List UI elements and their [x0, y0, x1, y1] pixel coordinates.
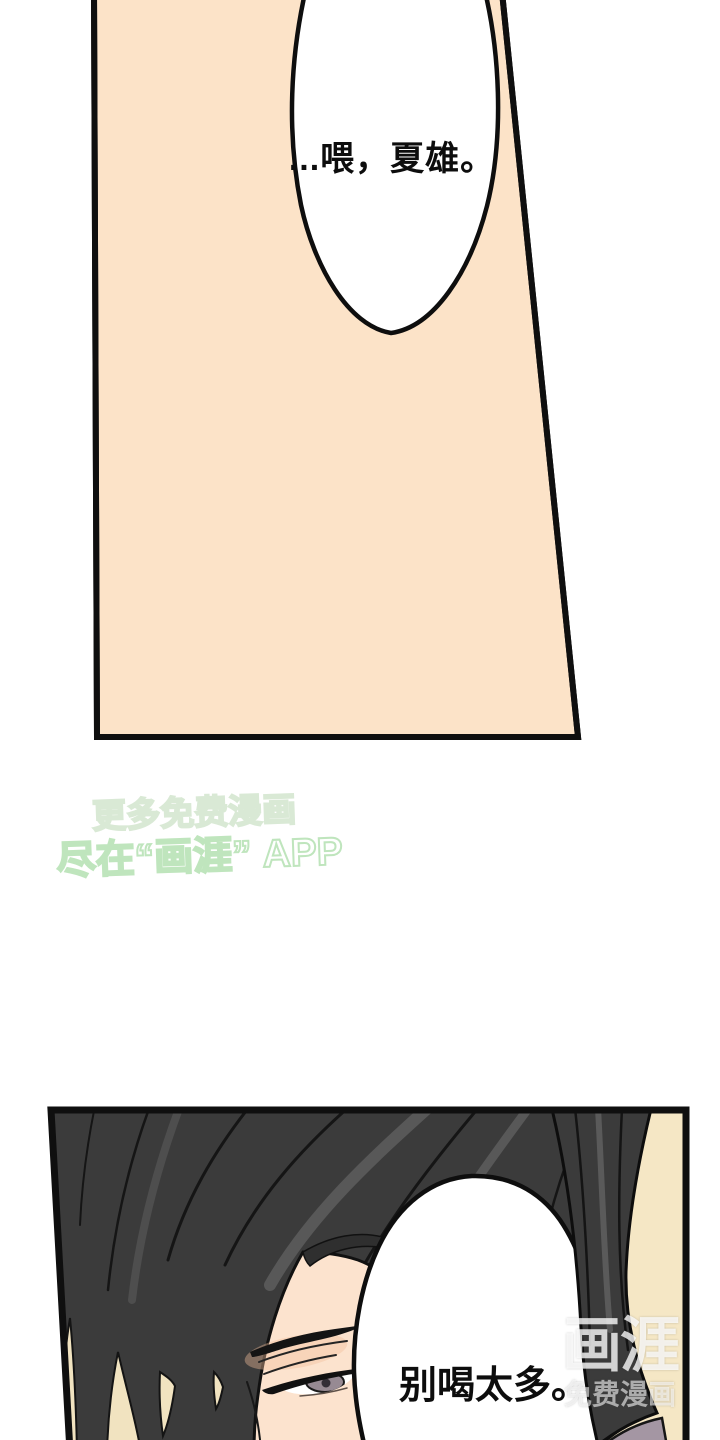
brand-watermark-tagline: 免费漫画: [552, 1380, 688, 1410]
top-panel: [94, 0, 578, 737]
promo-watermark: 更多免费漫画 尽在“画涯” APP: [55, 789, 358, 884]
brand-watermark: 画涯 免费漫画: [552, 1312, 688, 1410]
top-bubble-text: ...喂，夏雄。: [268, 131, 516, 180]
brand-watermark-logo: 画涯: [552, 1312, 688, 1380]
promo-watermark-line1: 更多免费漫画: [92, 789, 356, 836]
manga-page-artwork: [0, 0, 720, 1440]
